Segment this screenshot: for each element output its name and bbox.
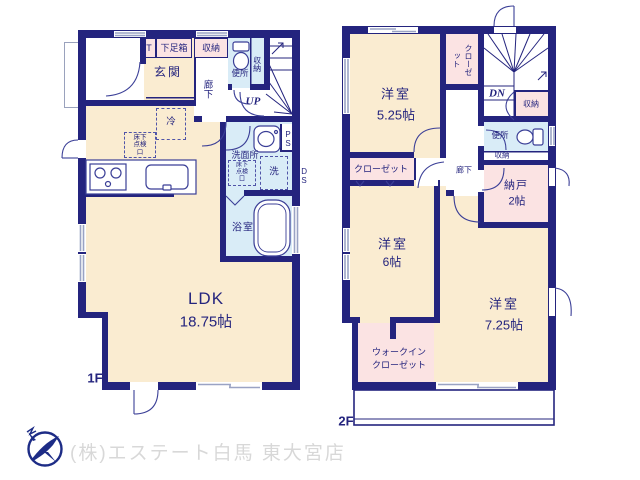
label-2f-storage-stairs: 収納 (523, 99, 539, 108)
label-1f-ldk-size: 18.75帖 (180, 313, 233, 330)
label-1f-fridge: 冷 (166, 118, 176, 129)
label-1f-up: UP (246, 96, 261, 109)
label-1f-bathroom: 浴室 (232, 222, 254, 234)
company-logo (27, 428, 62, 466)
label-1f-washroom: 洗面所 (231, 150, 258, 160)
label-2f-room1: 洋室 (381, 88, 411, 103)
label-2f-closet-v: クローゼット (450, 44, 474, 76)
label-2f-room2-size: 6帖 (383, 256, 402, 270)
label-1f-storage-top: 収納 (202, 43, 220, 53)
label-1f-ds: DS (299, 167, 308, 185)
label-1f-t: T (146, 43, 152, 53)
label-1f-storage-wc: 収納 (252, 56, 261, 72)
label-2f-wic-line2: クローゼット (372, 360, 426, 370)
label-1f-underfloor: 床下点検口 (132, 134, 148, 156)
label-2f-hallway: 廊下 (456, 165, 472, 174)
label-2f-storage-room-size: 2帖 (508, 196, 525, 209)
label-1f-toilet: 便所 (231, 69, 248, 79)
label-1f-ps: PS (283, 130, 292, 148)
label-2f-room3-size: 7.25帖 (485, 319, 523, 334)
label-2f-room3: 洋室 (489, 298, 519, 313)
doors-1f (62, 62, 264, 414)
label-2f-storage-wc: 収納 (495, 152, 510, 161)
label-1f-ldk: LDK (188, 289, 224, 309)
label-floor-1f: 1F (87, 372, 102, 387)
stairs-1f (266, 43, 294, 114)
label-1f-laundry: 洗 (269, 168, 279, 179)
label-1f-hallway: 廊下 (201, 80, 212, 99)
floorplan-linework (0, 0, 640, 480)
windows-2f (345, 29, 554, 388)
balcony-2f (354, 390, 554, 425)
label-2f-storage-room: 納戸 (504, 180, 528, 193)
label-2f-toilet: 便所 (491, 131, 508, 141)
label-floor-2f: 2F (338, 415, 353, 430)
label-2f-closet-h: クローゼット (354, 164, 408, 174)
window-gaps-2f (343, 27, 555, 390)
label-1f-underfloor2: 床下点検口 (235, 163, 249, 184)
label-2f-room2: 洋室 (378, 238, 408, 253)
company-name: (株)エステート白馬 東大宮店 (70, 438, 346, 465)
label-1f-shoebox: 下足箱 (160, 43, 187, 53)
floorplan-page: T 下足箱 収納 玄関 廊下 便所 収納 UP 冷 床下点検口 洗面所 床下点検… (0, 0, 640, 480)
label-1f-entrance: 玄関 (154, 66, 182, 80)
label-2f-room1-size: 5.25帖 (377, 109, 415, 124)
fixtures-1f (86, 42, 290, 256)
fixtures-2f (517, 129, 543, 145)
label-2f-wic-line1: ウォークイン (372, 347, 426, 357)
label-2f-dn: DN (489, 88, 505, 101)
